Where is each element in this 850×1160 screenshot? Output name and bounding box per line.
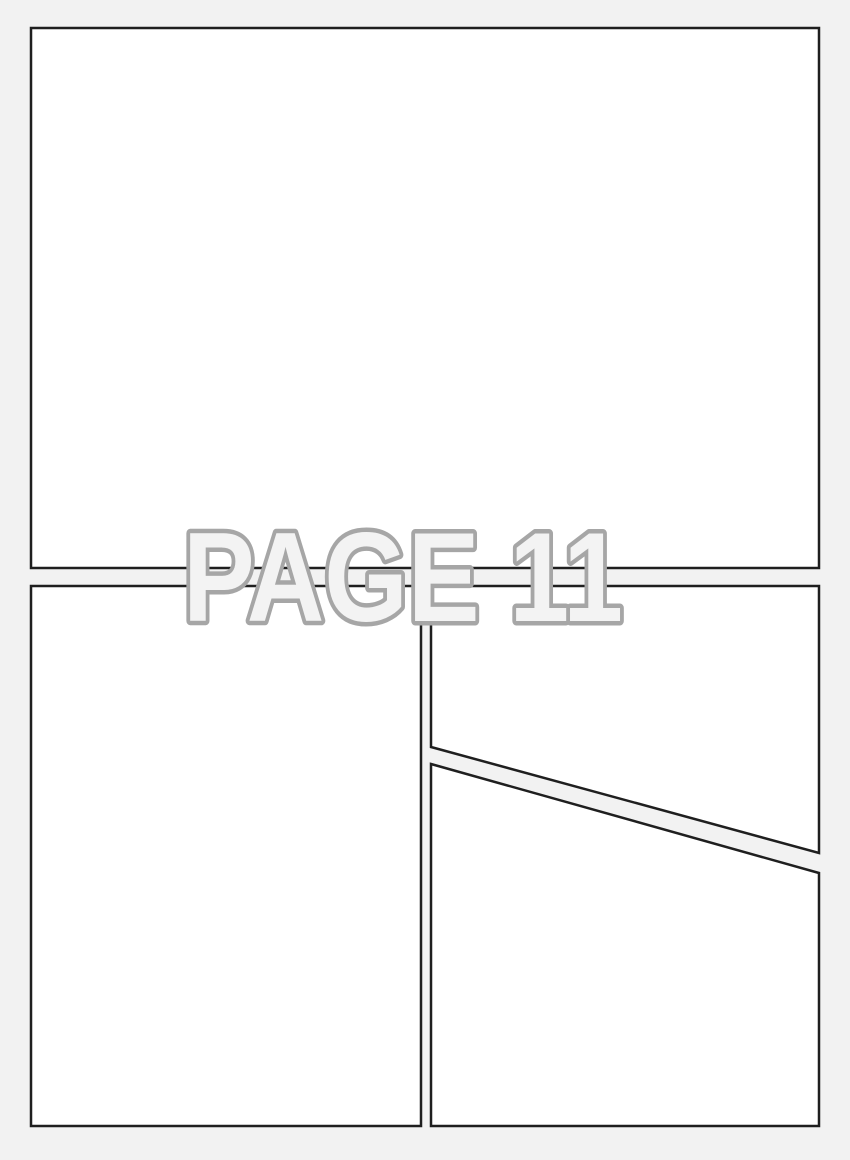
comic-page-template: PAGE 11 [0, 0, 850, 1160]
panel-top [31, 28, 819, 568]
panel-bottom-left [31, 586, 421, 1126]
page-number-watermark: PAGE 11 [183, 506, 623, 648]
page-canvas: PAGE 11 [0, 0, 850, 1160]
